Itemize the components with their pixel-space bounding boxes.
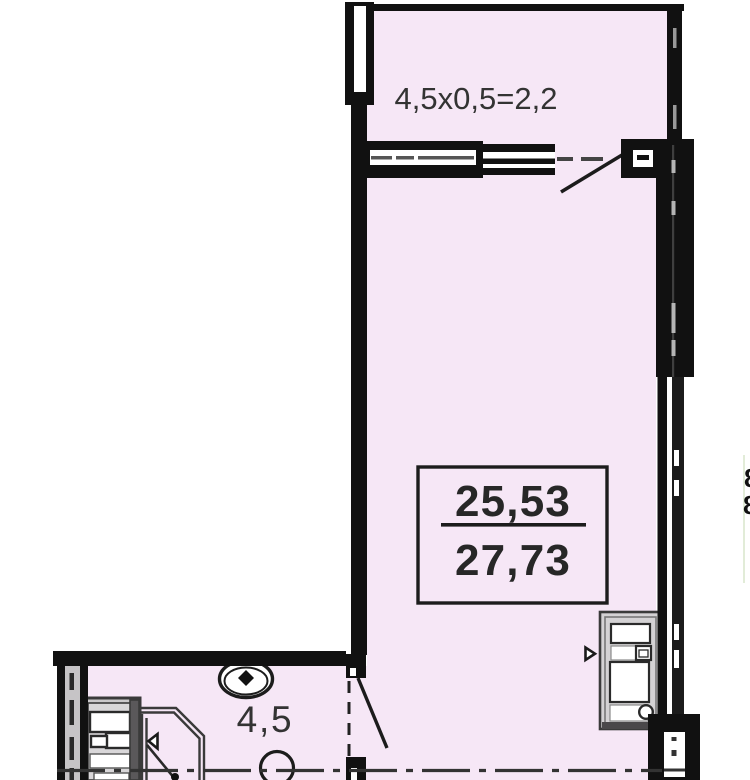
svg-text:8: 8	[743, 490, 750, 520]
svg-text:27,73: 27,73	[455, 536, 571, 585]
svg-text:4,5x0,5=2,2: 4,5x0,5=2,2	[395, 81, 558, 116]
svg-text:4,5: 4,5	[237, 699, 294, 740]
svg-text:8: 8	[744, 463, 750, 493]
svg-text:25,53: 25,53	[455, 477, 571, 526]
